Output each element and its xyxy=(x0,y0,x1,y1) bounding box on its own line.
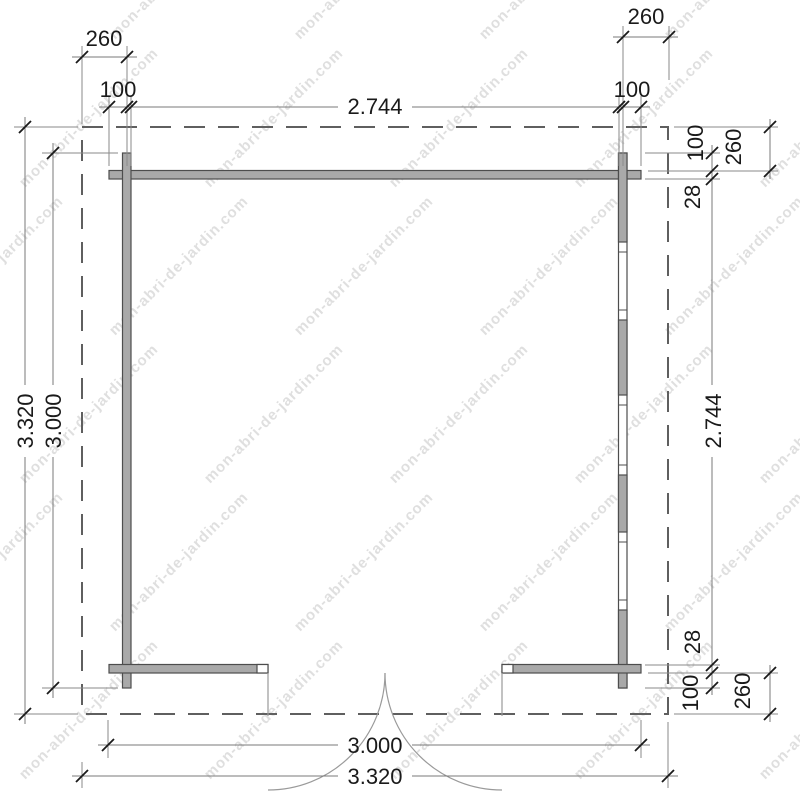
dim-right-overhang-bottom: 260 xyxy=(730,673,755,710)
watermark-text: mon-abri-de-jardin.com xyxy=(0,0,67,43)
right-wall-segment xyxy=(619,153,628,242)
watermark-text: mon-abri-de-jardin.com xyxy=(386,341,532,487)
dim-right-log-top: 100 xyxy=(683,125,708,162)
dim-right-inner-depth: 2.744 xyxy=(701,393,726,448)
watermark-text: mon-abri-de-jardin.com xyxy=(571,45,717,191)
bottom-wall-right-log xyxy=(502,665,641,674)
watermark-text: mon-abri-de-jardin.com xyxy=(16,45,162,191)
top-wall xyxy=(109,171,641,180)
watermark-text: mon-abri-de-jardin.com xyxy=(756,45,800,191)
bottom-wall-left xyxy=(109,665,268,674)
watermark-text: mon-abri-de-jardin.com xyxy=(201,637,347,783)
dim-right-overhang-top: 260 xyxy=(721,129,746,166)
watermark-text: mon-abri-de-jardin.com xyxy=(201,45,347,191)
right-wall-segment xyxy=(619,475,628,532)
dim-top-overhang-left: 260 xyxy=(86,26,123,51)
watermark-text: mon-abri-de-jardin.com xyxy=(476,193,622,339)
bottom-wall-right xyxy=(502,665,641,674)
watermark-text: mon-abri-de-jardin.com xyxy=(571,341,717,487)
watermark-text: mon-abri-de-jardin.com xyxy=(291,193,437,339)
dim-top-overhang-right: 260 xyxy=(628,4,665,29)
watermark-text: mon-abri-de-jardin.com xyxy=(16,637,162,783)
dim-right-wall-thickness-bottom: 28 xyxy=(680,630,705,654)
watermark-text: mon-abri-de-jardin.com xyxy=(201,341,347,487)
watermark-text: mon-abri-de-jardin.com xyxy=(291,489,437,635)
shed-floor-plan-drawing: mon-abri-de-jardin.common-abri-de-jardin… xyxy=(0,0,800,800)
right-wall xyxy=(619,153,628,688)
dim-right-wall-thickness-top: 28 xyxy=(680,185,705,209)
watermark-text: mon-abri-de-jardin.com xyxy=(106,0,252,43)
dim-top-log-right: 100 xyxy=(614,77,651,102)
watermark-text: mon-abri-de-jardin.com xyxy=(0,489,67,635)
watermark-text: mon-abri-de-jardin.com xyxy=(661,489,800,635)
watermark-text: mon-abri-de-jardin.com xyxy=(756,637,800,783)
watermark-text: mon-abri-de-jardin.com xyxy=(476,0,622,43)
dim-top-inner-width: 2.744 xyxy=(347,94,402,119)
watermark-text: mon-abri-de-jardin.com xyxy=(386,637,532,783)
watermark-text: mon-abri-de-jardin.com xyxy=(661,193,800,339)
right-wall-segment xyxy=(619,610,628,688)
dim-right-log-bottom: 100 xyxy=(678,675,703,712)
left-wall xyxy=(123,153,132,688)
dim-left-total-depth: 3.320 xyxy=(13,393,38,448)
dim-bottom-wall-width: 3.000 xyxy=(347,733,402,758)
shed-walls xyxy=(109,153,641,688)
dim-top-log-left: 100 xyxy=(100,77,137,102)
roof-overhang-outline xyxy=(82,127,668,714)
watermark-text: mon-abri-de-jardin.com xyxy=(661,0,800,43)
bottom-wall-left-log xyxy=(109,665,268,674)
right-wall-segment xyxy=(619,320,628,395)
watermark-text: mon-abri-de-jardin.com xyxy=(0,193,67,339)
floor-plan-page: mon-abri-de-jardin.common-abri-de-jardin… xyxy=(0,0,800,800)
door-jamb-block-right xyxy=(502,665,513,674)
door-jamb-block-left xyxy=(257,665,268,674)
watermark-text: mon-abri-de-jardin.com xyxy=(756,341,800,487)
dim-left-wall-depth: 3.000 xyxy=(41,393,66,448)
watermark-text: mon-abri-de-jardin.com xyxy=(291,0,437,43)
watermark-text: mon-abri-de-jardin.com xyxy=(386,45,532,191)
dim-bottom-total-width: 3.320 xyxy=(347,764,402,789)
watermark-text: mon-abri-de-jardin.com xyxy=(476,489,622,635)
